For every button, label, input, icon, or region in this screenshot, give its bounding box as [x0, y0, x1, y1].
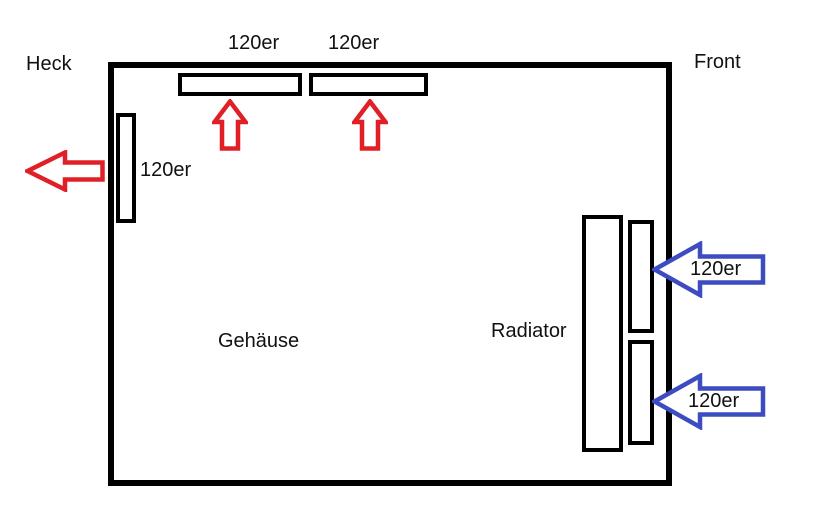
top-fan-2-label: 120er — [328, 32, 379, 54]
top-fan-1-label: 120er — [228, 32, 279, 54]
airflow-diagram: Heck Front 120er 120er 120er Gehäuse Rad… — [0, 0, 820, 532]
exhaust-up-arrow-2-icon — [352, 99, 388, 151]
top-fan-1 — [178, 73, 302, 96]
exhaust-up-arrow-1-icon — [212, 99, 248, 151]
exhaust-left-arrow-icon — [25, 150, 105, 192]
front-fan-1-label: 120er — [690, 258, 741, 280]
front-fan-2 — [628, 340, 654, 445]
front-fan-2-label: 120er — [688, 390, 739, 412]
front-label: Front — [694, 51, 741, 73]
front-fan-1 — [628, 220, 654, 333]
exhaust-up-arrow-1-shape — [215, 102, 246, 149]
heck-label: Heck — [26, 53, 72, 75]
radiator-rect — [582, 215, 623, 452]
exhaust-left-arrow-shape — [28, 153, 103, 190]
exhaust-up-arrow-2-shape — [355, 102, 386, 149]
top-fan-2 — [309, 73, 428, 96]
rear-fan — [116, 113, 136, 223]
